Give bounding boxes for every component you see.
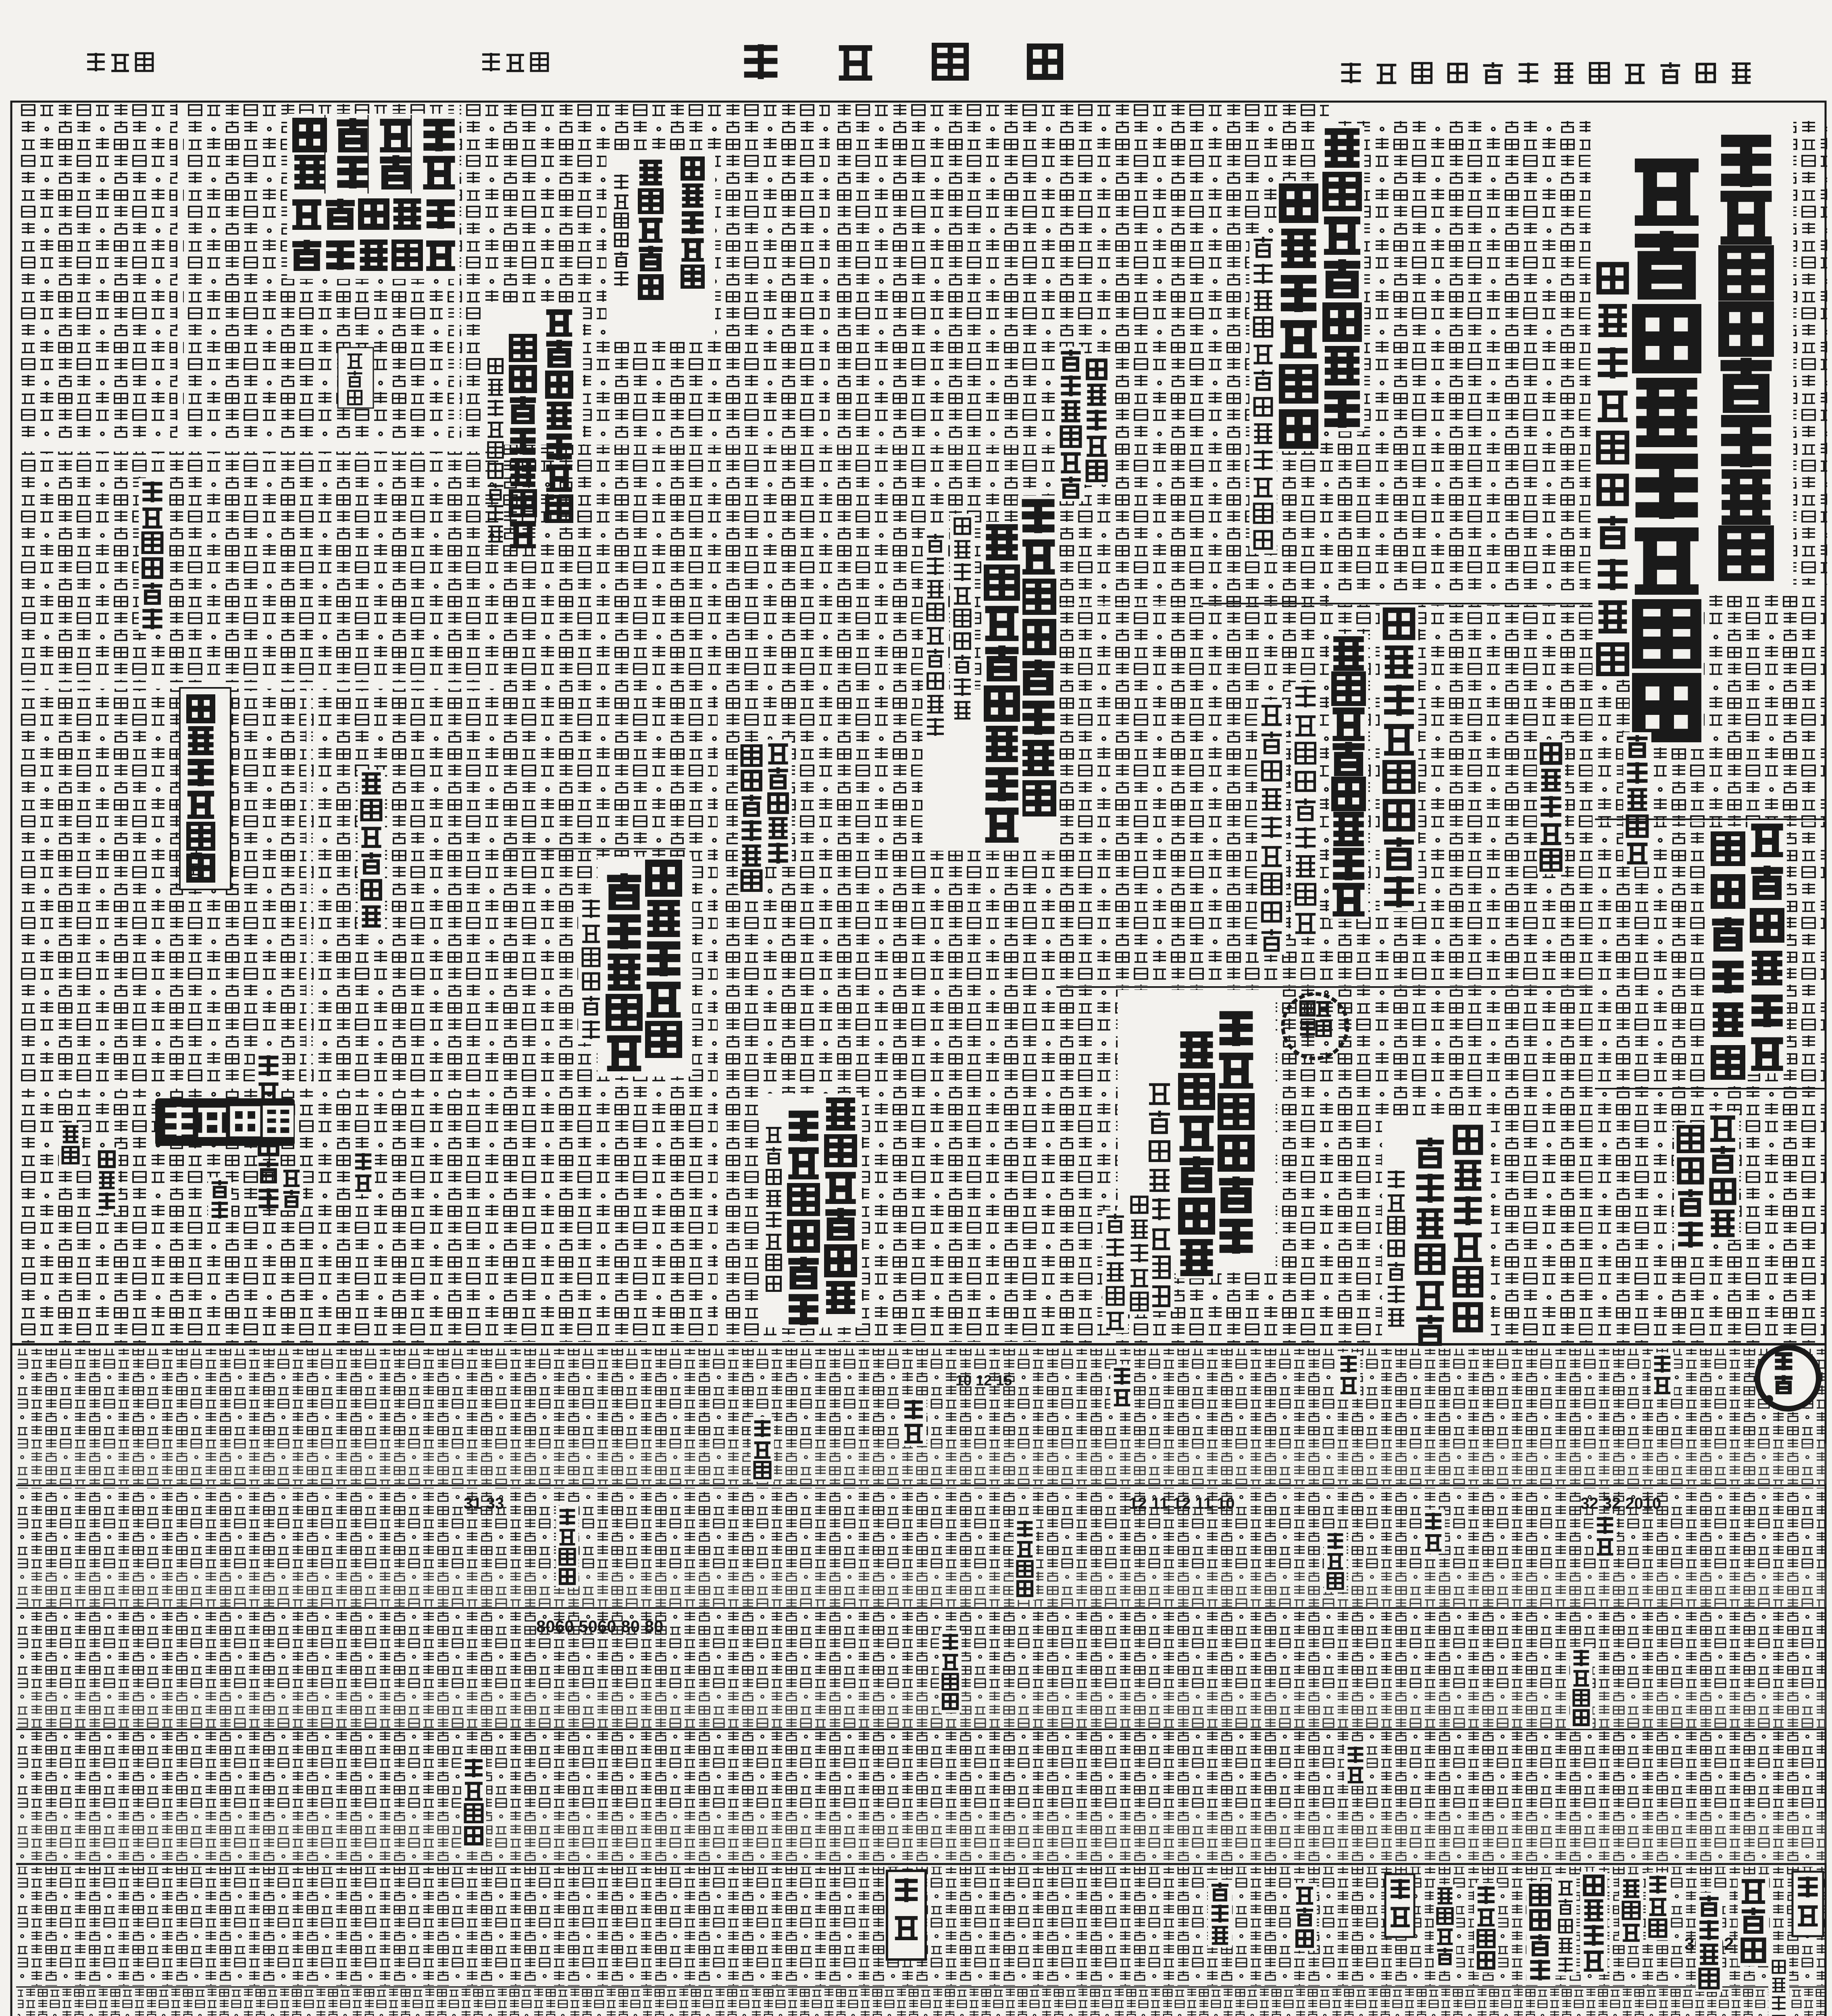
svg-text:12 11 12 11 10: 12 11 12 11 10	[1129, 1495, 1235, 1512]
svg-text:32 32 2010: 32 32 2010	[1580, 1495, 1661, 1512]
svg-text:10 12 15: 10 12 15	[956, 1372, 1012, 1389]
svg-text:8060 5060 80 80: 8060 5060 80 80	[536, 1617, 663, 1636]
svg-text:31 33: 31 33	[464, 1495, 504, 1512]
